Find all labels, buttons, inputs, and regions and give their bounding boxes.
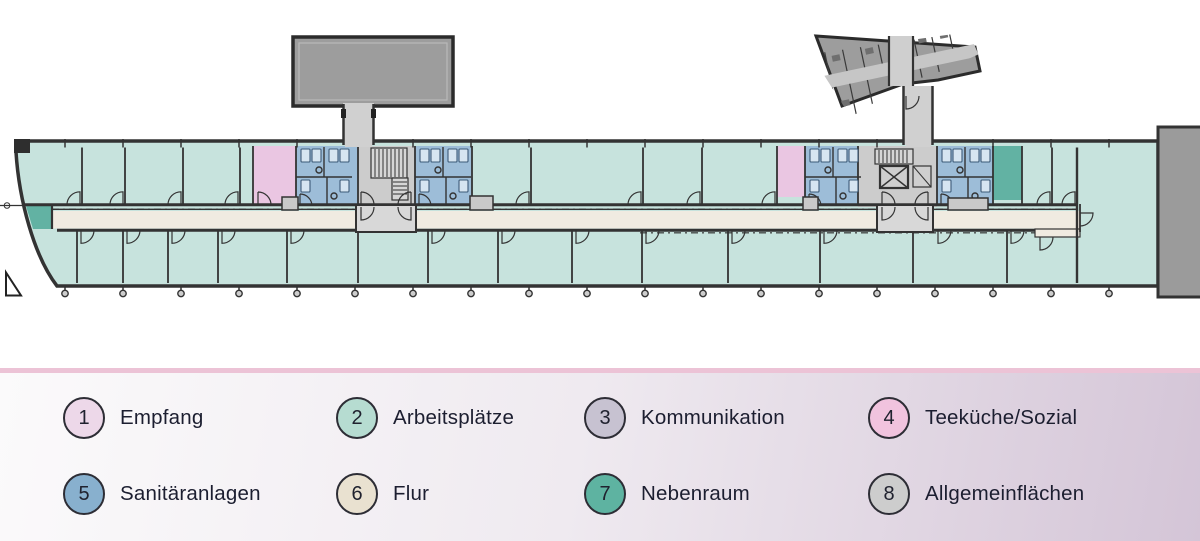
legend-dot-6: 6 [336, 473, 378, 515]
corner-pillar [14, 139, 30, 153]
legend-label-4: Teeküche/Sozial [925, 406, 1077, 430]
legend-dot-3: 3 [584, 397, 626, 439]
legend-item-flur: 6 Flur [336, 473, 429, 515]
legend-item-teekueche: 4 Teeküche/Sozial [868, 397, 1077, 439]
legend-item-nebenraum: 7 Nebenraum [584, 473, 750, 515]
left-wing-connector [343, 103, 374, 145]
teekueche-room-2 [777, 146, 804, 197]
left-wing [293, 37, 453, 147]
legend-label-7: Nebenraum [641, 482, 750, 506]
legend-item-arbeitsplaetze: 2 Arbeitsplätze [336, 397, 514, 439]
legend-dot-4: 4 [868, 397, 910, 439]
legend-item-allgemeinflaechen: 8 Allgemeinflächen [868, 473, 1084, 515]
legend-item-kommunikation: 3 Kommunikation [584, 397, 785, 439]
column-dots [62, 287, 1112, 297]
legend-dot-8: 8 [868, 473, 910, 515]
floor-plan [0, 0, 1200, 368]
floor-plan-drawing [0, 0, 1200, 368]
section-marker [0, 203, 22, 209]
legend-label-2: Arbeitsplätze [393, 406, 514, 430]
nebenraum-2 [993, 146, 1022, 200]
legend-label-1: Empfang [120, 406, 203, 430]
page: 1 Empfang 2 Arbeitsplätze 3 Kommunikatio… [0, 0, 1200, 541]
legend-panel: 1 Empfang 2 Arbeitsplätze 3 Kommunikatio… [0, 368, 1200, 541]
adjacent-building-block [1158, 127, 1200, 297]
legend-label-8: Allgemeinflächen [925, 482, 1084, 506]
legend-label-3: Kommunikation [641, 406, 785, 430]
legend-dot-7: 7 [584, 473, 626, 515]
legend-label-6: Flur [393, 482, 429, 506]
north-arrow-icon [6, 273, 21, 296]
right-wing-connector [903, 86, 933, 145]
legend-label-5: Sanitäranlagen [120, 482, 261, 506]
legend-dot-2: 2 [336, 397, 378, 439]
legend-dot-5: 5 [63, 473, 105, 515]
legend-item-empfang: 1 Empfang [63, 397, 203, 439]
legend-dot-1: 1 [63, 397, 105, 439]
teekueche-room-1 [253, 146, 296, 205]
legend-item-sanitaeranlagen: 5 Sanitäranlagen [63, 473, 261, 515]
right-wing-corridor [889, 36, 913, 86]
right-wing [795, 17, 1001, 147]
